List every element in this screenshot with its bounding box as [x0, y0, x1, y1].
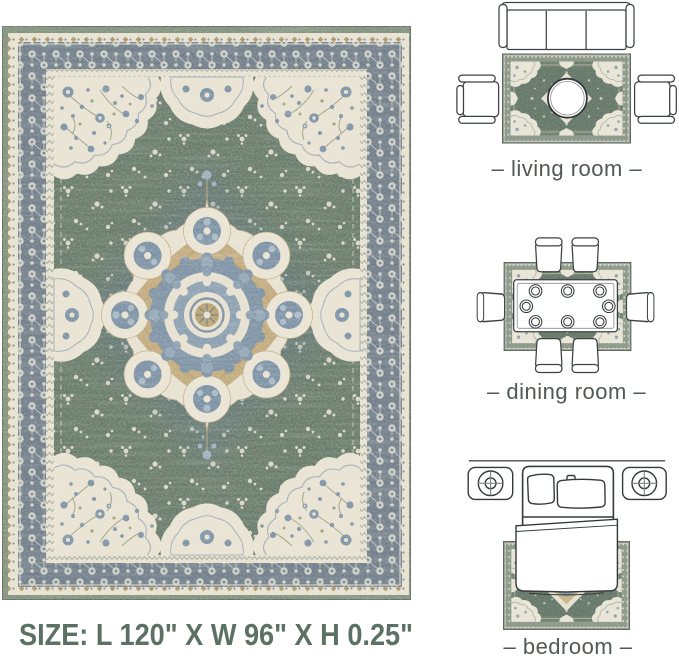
svg-text:– living room –: – living room –	[492, 156, 643, 181]
svg-text:– dining room –: – dining room –	[487, 379, 646, 404]
svg-text:SIZE: L 120" X W 96" X H 0.25": SIZE: L 120" X W 96" X H 0.25"	[19, 617, 413, 652]
svg-text:– bedroom –: – bedroom –	[503, 634, 632, 658]
